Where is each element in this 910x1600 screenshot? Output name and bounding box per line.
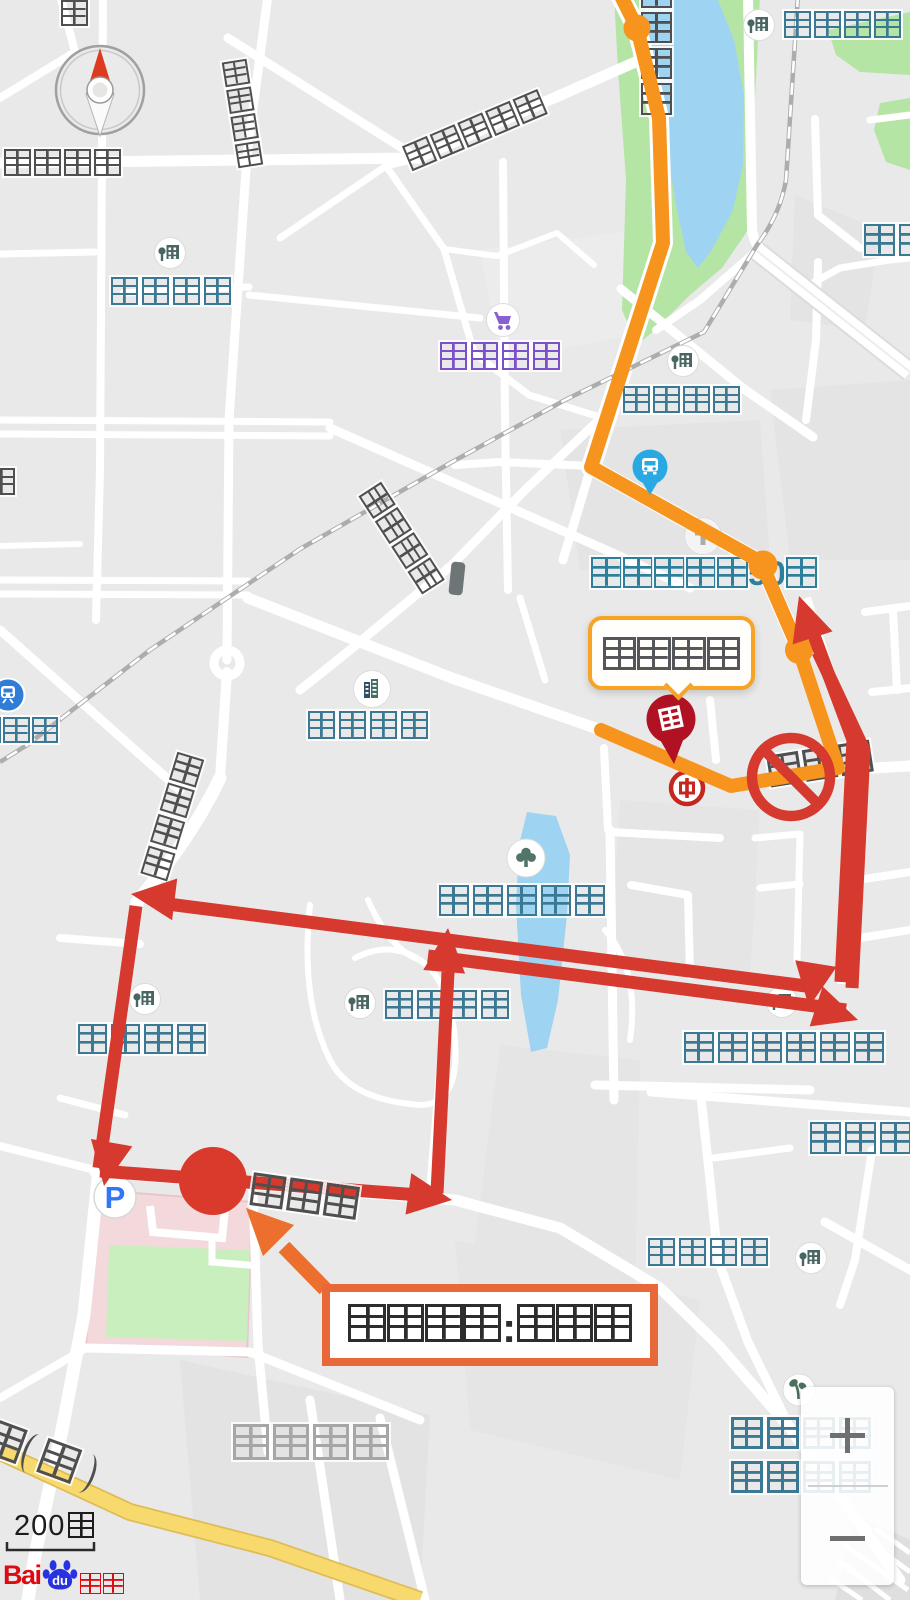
svg-text:du: du: [52, 1573, 68, 1588]
